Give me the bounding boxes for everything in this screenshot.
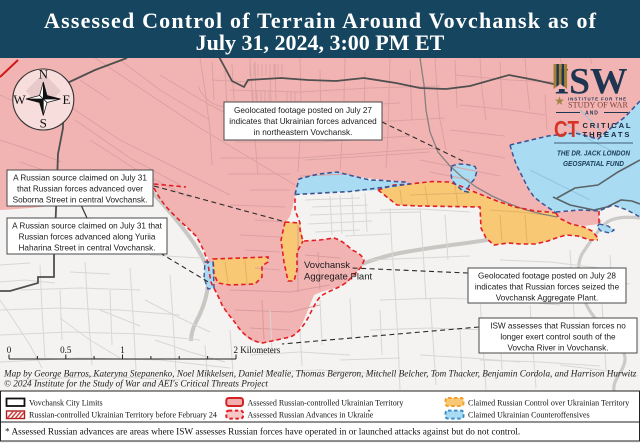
svg-text:0.5: 0.5 xyxy=(60,345,72,355)
svg-text:Soborna Street in central Vovc: Soborna Street in central Vovchansk. xyxy=(13,196,148,205)
svg-text:★: ★ xyxy=(554,94,565,108)
svg-text:Map by George Barros, Kateryna: Map by George Barros, Kateryna Stepanenk… xyxy=(3,369,637,379)
svg-text:July 31, 2024, 3:00 PM ET: July 31, 2024, 3:00 PM ET xyxy=(196,30,445,55)
svg-text:*: * xyxy=(368,410,371,416)
svg-text:CT: CT xyxy=(554,116,579,142)
svg-text:that Russian forces advanced o: that Russian forces advanced over xyxy=(17,185,143,194)
svg-text:* Assessed Russian advances ar: * Assessed Russian advances are areas wh… xyxy=(5,427,520,438)
svg-text:A Russian source claimed on Ju: A Russian source claimed on July 31 xyxy=(13,174,147,183)
svg-text:indicates that Russian forces: indicates that Russian forces seized the xyxy=(475,283,620,292)
svg-text:THE DR. JACK LONDON: THE DR. JACK LONDON xyxy=(557,149,630,158)
svg-text:in northeastern Vovchansk.: in northeastern Vovchansk. xyxy=(254,128,353,137)
svg-text:N: N xyxy=(39,67,49,82)
svg-text:Aggregate Plant: Aggregate Plant xyxy=(304,272,372,283)
svg-text:0: 0 xyxy=(7,345,12,355)
svg-text:S: S xyxy=(40,116,47,131)
svg-text:Vovchansk City Limits: Vovchansk City Limits xyxy=(29,398,103,407)
svg-text:© 2024 Institute for the Study: © 2024 Institute for the Study of War an… xyxy=(4,379,268,389)
svg-text:AND: AND xyxy=(585,111,599,117)
svg-text:W: W xyxy=(13,92,26,107)
svg-text:Assessed Russian-controlled Uk: Assessed Russian-controlled Ukrainian Te… xyxy=(248,398,404,407)
svg-text:Claimed Ukrainian Counteroffen: Claimed Ukrainian Counteroffensives xyxy=(468,411,590,420)
svg-text:THREATS: THREATS xyxy=(583,130,630,139)
svg-text:Geolocated footage posted on J: Geolocated footage posted on July 28 xyxy=(478,272,616,281)
svg-text:Geolocated footage posted on J: Geolocated footage posted on July 27 xyxy=(234,106,372,115)
svg-text:E: E xyxy=(63,92,71,107)
svg-text:longer exert control south of: longer exert control south of the xyxy=(500,333,616,342)
svg-text:Claimed Russian Control over U: Claimed Russian Control over Ukrainian T… xyxy=(468,398,629,407)
svg-text:Haharina Street in central Vov: Haharina Street in central Vovchansk. xyxy=(19,244,156,253)
svg-text:Assessed Russian Advances in U: Assessed Russian Advances in Ukraine xyxy=(248,411,374,420)
svg-text:Vovcha River in Vovchansk.: Vovcha River in Vovchansk. xyxy=(507,344,608,353)
svg-text:GEOSPATIAL FUND: GEOSPATIAL FUND xyxy=(563,159,624,168)
svg-text:2 Kilometers: 2 Kilometers xyxy=(234,345,281,355)
svg-text:Vovchansk: Vovchansk xyxy=(304,260,350,271)
svg-text:1: 1 xyxy=(120,345,125,355)
svg-text:Russian forces advanced along: Russian forces advanced along Yuriia xyxy=(19,233,156,242)
svg-text:Vovchansk Aggregate Plant.: Vovchansk Aggregate Plant. xyxy=(496,294,598,303)
svg-text:A Russian source claimed on Ju: A Russian source claimed on July 31 that xyxy=(12,222,162,231)
svg-text:Russian-controlled Ukrainian T: Russian-controlled Ukrainian Territory b… xyxy=(29,411,217,420)
svg-text:STUDY OF WAR: STUDY OF WAR xyxy=(568,100,628,110)
svg-text:CRITICAL: CRITICAL xyxy=(583,121,631,130)
svg-text:ISW assesses that Russian forc: ISW assesses that Russian forces no xyxy=(490,322,626,331)
svg-text:indicates that Ukrainian force: indicates that Ukrainian forces advanced xyxy=(229,117,377,126)
